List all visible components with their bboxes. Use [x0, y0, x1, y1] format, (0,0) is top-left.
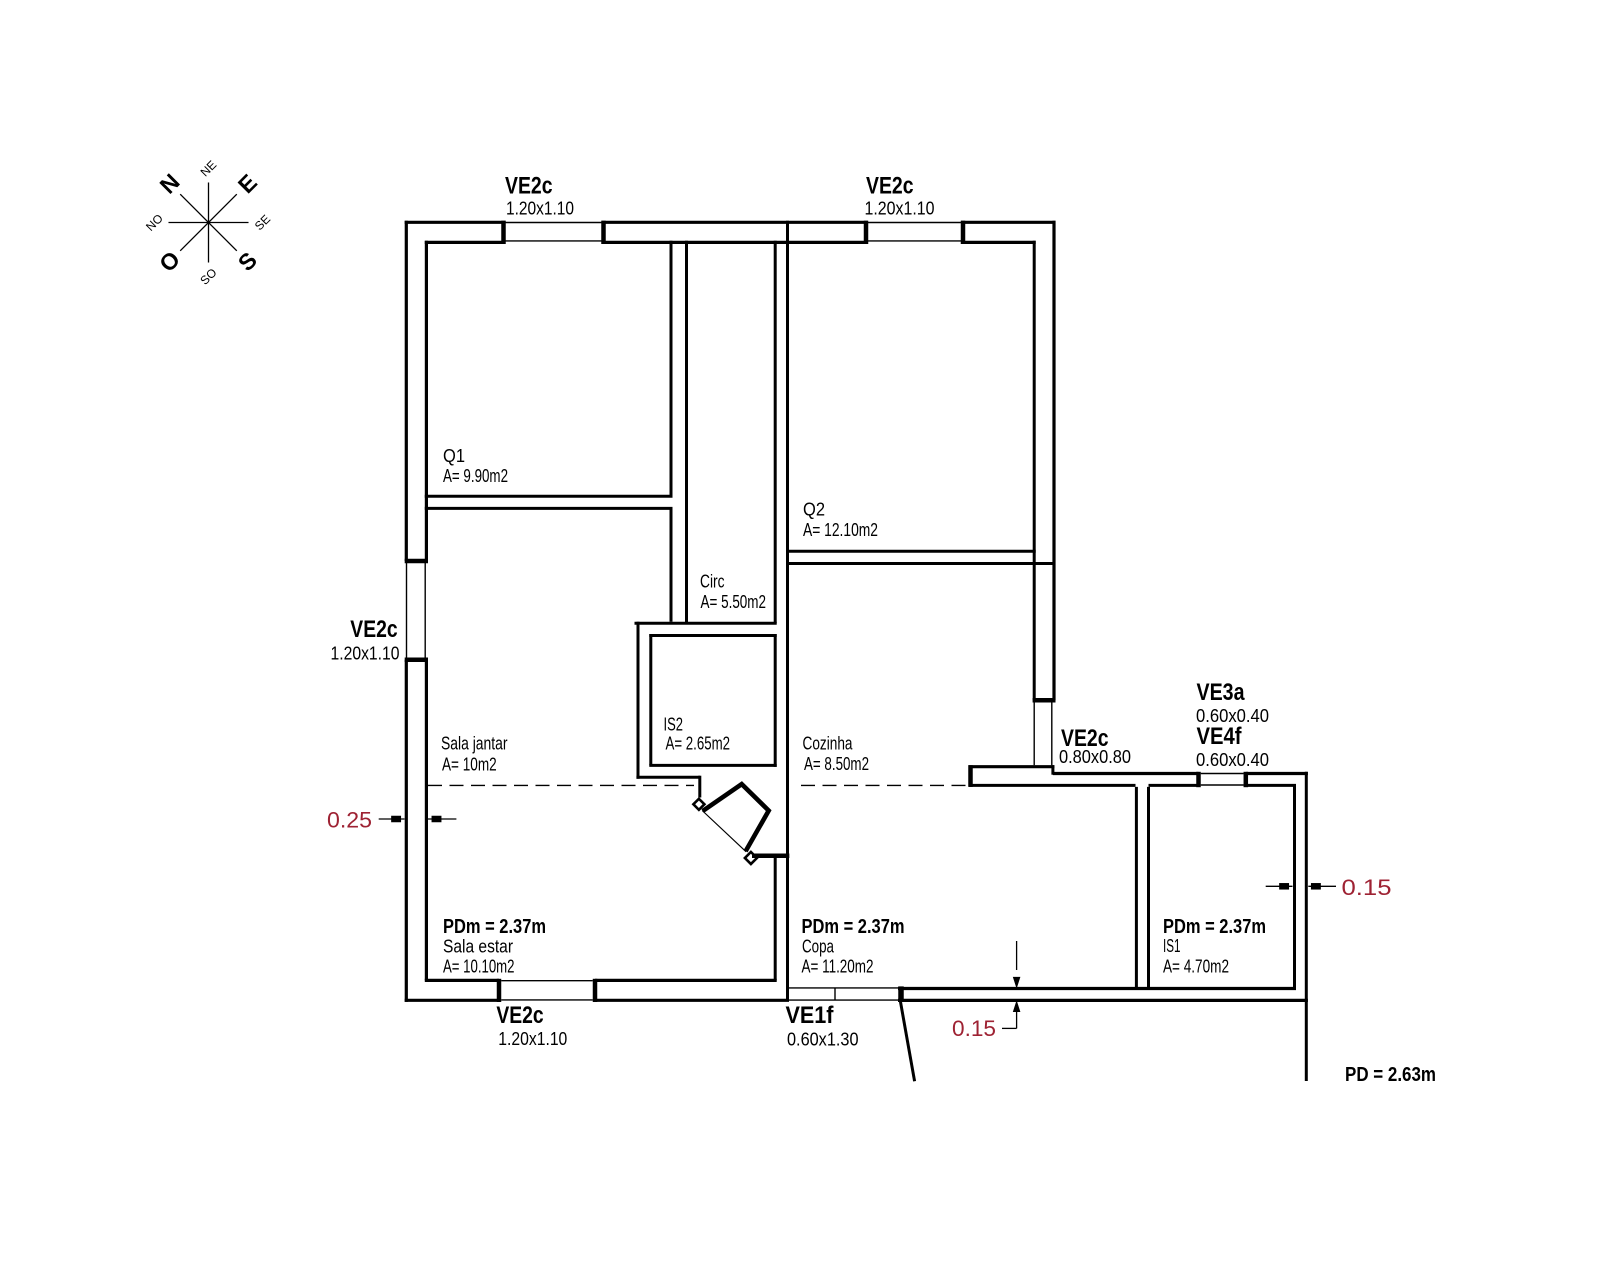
svg-text:A= 2.65m2: A= 2.65m2: [666, 734, 731, 754]
svg-text:PDm = 2.37m: PDm = 2.37m: [443, 916, 546, 938]
svg-text:A= 9.90m2: A= 9.90m2: [443, 466, 508, 486]
svg-text:IS1: IS1: [1163, 936, 1181, 956]
svg-text:PDm = 2.37m: PDm = 2.37m: [1163, 916, 1266, 938]
svg-text:0.80x0.80: 0.80x0.80: [1059, 747, 1131, 767]
svg-text:1.20x1.10: 1.20x1.10: [865, 199, 935, 219]
svg-text:1.20x1.10: 1.20x1.10: [506, 199, 574, 219]
svg-text:IS2: IS2: [664, 715, 684, 735]
svg-text:VE1f: VE1f: [786, 1002, 835, 1029]
svg-text:VE2c: VE2c: [505, 172, 553, 199]
svg-text:A= 11.20m2: A= 11.20m2: [802, 957, 874, 977]
svg-text:PD = 2.63m: PD = 2.63m: [1345, 1064, 1436, 1086]
svg-text:A= 8.50m2: A= 8.50m2: [804, 754, 869, 774]
svg-text:A= 4.70m2: A= 4.70m2: [1163, 957, 1229, 977]
svg-text:VE4f: VE4f: [1197, 723, 1243, 750]
svg-text:VE2c: VE2c: [496, 1002, 543, 1029]
svg-text:0.60x1.30: 0.60x1.30: [787, 1029, 859, 1049]
svg-text:A= 12.10m2: A= 12.10m2: [803, 520, 878, 540]
svg-text:VE2c: VE2c: [866, 172, 914, 199]
svg-text:0.60x0.40: 0.60x0.40: [1196, 750, 1269, 770]
svg-text:Q2: Q2: [803, 500, 825, 520]
svg-text:A= 10.10m2: A= 10.10m2: [443, 957, 515, 977]
svg-text:A= 5.50m2: A= 5.50m2: [701, 592, 767, 612]
svg-text:Sala estar: Sala estar: [443, 936, 513, 956]
svg-text:1.20x1.10: 1.20x1.10: [331, 644, 400, 664]
svg-text:Sala jantar: Sala jantar: [441, 733, 508, 753]
svg-text:VE3a: VE3a: [1197, 679, 1246, 706]
svg-text:0.15: 0.15: [1342, 875, 1392, 900]
svg-text:0.15: 0.15: [952, 1016, 996, 1041]
svg-text:Copa: Copa: [802, 936, 835, 956]
svg-text:VE2c: VE2c: [350, 616, 397, 643]
svg-text:PDm = 2.37m: PDm = 2.37m: [802, 916, 905, 938]
svg-text:0.25: 0.25: [327, 808, 372, 833]
svg-text:Q1: Q1: [443, 446, 465, 466]
svg-text:Circ: Circ: [700, 572, 725, 592]
svg-text:A= 10m2: A= 10m2: [442, 754, 497, 774]
svg-text:1.20x1.10: 1.20x1.10: [498, 1029, 567, 1049]
svg-text:Cozinha: Cozinha: [803, 734, 854, 754]
